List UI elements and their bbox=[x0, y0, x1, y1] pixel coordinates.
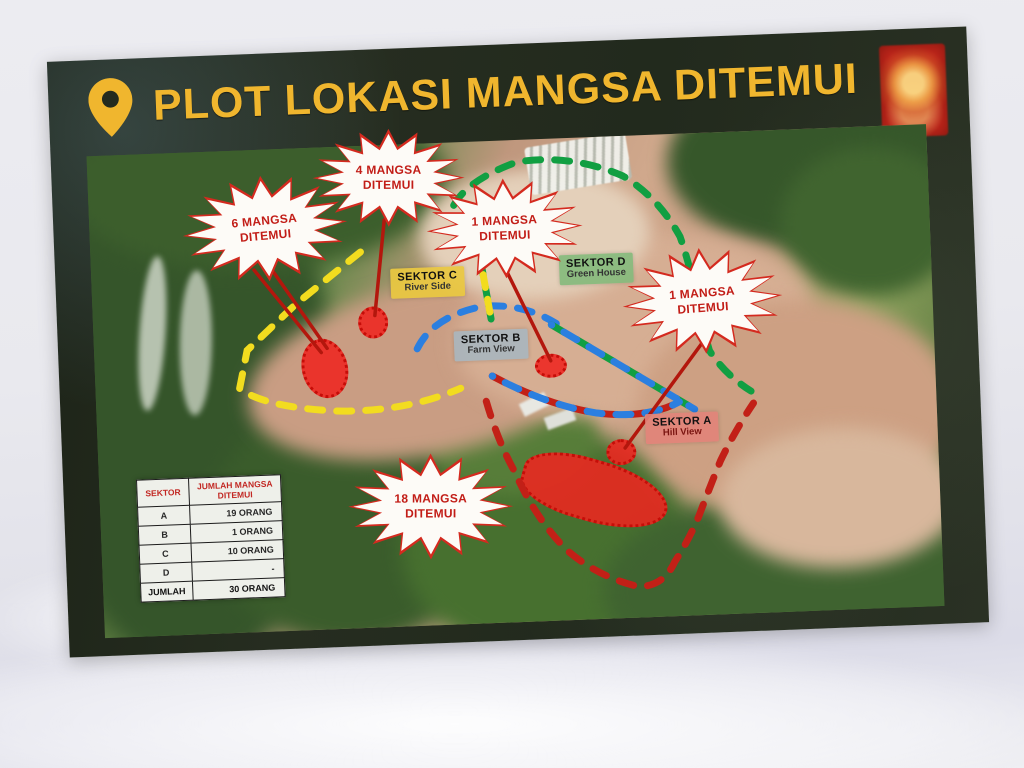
sector-label-b: SEKTOR B Farm View bbox=[454, 329, 529, 362]
callout-18-mangsa: 18 MANGSA DITEMUI bbox=[348, 453, 513, 560]
poster: PLOT LOKASI MANGSA DITEMUI bbox=[47, 27, 989, 658]
callout-1-mangsa-center: 1 MANGSA DITEMUI bbox=[425, 175, 585, 281]
victim-count-table: SEKTOR JUMLAH MANGSA DITEMUI A 19 ORANG … bbox=[136, 474, 286, 602]
aerial-map: SEKTOR C River Side SEKTOR D Green House… bbox=[87, 124, 945, 638]
sector-label-a: SEKTOR A Hill View bbox=[645, 411, 720, 444]
callout-1-mangsa-right: 1 MANGSA DITEMUI bbox=[619, 242, 786, 359]
location-pin-icon bbox=[88, 77, 134, 139]
table-header-sektor: SEKTOR bbox=[137, 478, 190, 507]
paper-glare bbox=[0, 640, 1024, 768]
poster-title: PLOT LOKASI MANGSA DITEMUI bbox=[152, 54, 859, 130]
sector-a-boundary bbox=[486, 391, 760, 592]
table-header-jumlah: JUMLAH MANGSA DITEMUI bbox=[188, 475, 281, 506]
callout-pointer-line bbox=[371, 220, 388, 315]
